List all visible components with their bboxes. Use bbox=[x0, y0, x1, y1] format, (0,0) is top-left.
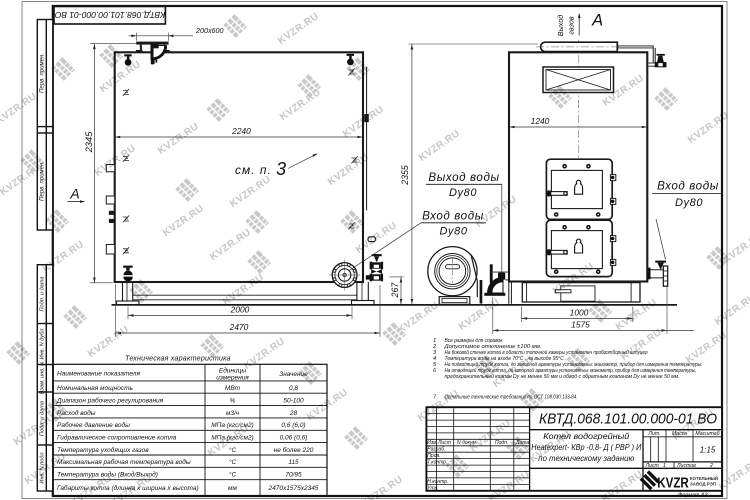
svg-text:KVZR: KVZR bbox=[657, 474, 689, 491]
svg-text:ЗАВОД РЭП: ЗАВОД РЭП bbox=[690, 482, 716, 487]
svg-text:измерения: измерения bbox=[216, 375, 249, 382]
svg-text:Перв. примен.: Перв. примен. bbox=[40, 53, 46, 93]
svg-text:Н.контр.: Н.контр. bbox=[427, 479, 448, 485]
svg-text:267: 267 bbox=[390, 282, 400, 299]
svg-text:2470: 2470 bbox=[229, 322, 249, 332]
svg-text:Рабочее давление воды: Рабочее давление воды bbox=[57, 421, 130, 429]
svg-text:°С: °С bbox=[229, 458, 237, 466]
svg-text:Лист: Лист bbox=[645, 463, 660, 469]
svg-text:50-100: 50-100 bbox=[283, 397, 304, 404]
svg-text:0,06 (0,6): 0,06 (0,6) bbox=[280, 435, 308, 442]
svg-text:200х600: 200х600 bbox=[195, 26, 224, 35]
svg-text:1000: 1000 bbox=[570, 307, 589, 317]
svg-text:Температура воды на входе 70°: Температура воды на входе 70°С , на выхо… bbox=[445, 356, 567, 362]
svg-text:Формат А3: Формат А3 bbox=[678, 493, 708, 499]
svg-text:%: % bbox=[230, 397, 236, 404]
svg-text:Диапазон рабочего регулировани: Диапазон рабочего регулирования bbox=[56, 396, 164, 404]
svg-text:А: А bbox=[69, 186, 79, 202]
svg-text:Допустимое отклонение ±100 мм: Допустимое отклонение ±100 мм. bbox=[443, 344, 541, 350]
svg-text:Масштаб: Масштаб bbox=[695, 431, 720, 437]
svg-text:по техническому заданию: по техническому заданию bbox=[538, 454, 634, 463]
svg-text:Наименование показателя: Наименование показателя bbox=[57, 371, 140, 378]
svg-text:0,6 (6,0): 0,6 (6,0) bbox=[281, 422, 305, 429]
svg-text:1575: 1575 bbox=[571, 319, 590, 329]
svg-text:Пров.: Пров. bbox=[427, 453, 440, 459]
svg-text:Инв. N дубл: Инв. N дубл bbox=[40, 328, 46, 360]
svg-text:Температура уходящих газов: Температура уходящих газов bbox=[57, 446, 149, 454]
svg-text:2355: 2355 bbox=[400, 165, 410, 186]
svg-text:Dу80: Dу80 bbox=[439, 226, 467, 238]
svg-text:Выход: Выход bbox=[556, 15, 565, 37]
svg-text:Выход воды: Выход воды bbox=[428, 171, 499, 184]
svg-text:Изм: Изм bbox=[427, 440, 437, 446]
svg-text:Подп. и дата: Подп. и дата bbox=[40, 276, 46, 311]
svg-text:2470х1575х2345: 2470х1575х2345 bbox=[268, 485, 319, 492]
svg-text:70/95: 70/95 bbox=[285, 472, 302, 479]
svg-text:Взам. инв. N: Взам. инв. N bbox=[40, 361, 46, 395]
svg-text:Т.контр.: Т.контр. bbox=[427, 460, 447, 466]
svg-text:Dу80: Dу80 bbox=[449, 187, 477, 199]
svg-text:На боковой стенке котла в обла: На боковой стенке котла в области топочн… bbox=[445, 349, 648, 356]
svg-text:КОТЕЛЬНЫЙ: КОТЕЛЬНЫЙ bbox=[690, 476, 718, 481]
svg-text:1:15: 1:15 bbox=[700, 446, 716, 455]
svg-text:А: А bbox=[591, 11, 603, 29]
svg-text:Лит.: Лит. bbox=[647, 431, 660, 437]
svg-text:28: 28 bbox=[289, 410, 298, 417]
svg-text:Гидравлическое сопротивление к: Гидравлическое сопротивление котла bbox=[57, 434, 177, 442]
svg-text:1: 1 bbox=[663, 463, 666, 469]
svg-text:Единицы: Единицы bbox=[219, 367, 246, 375]
svg-text:Максимальная рабочая температу: Максимальная рабочая температура воды bbox=[57, 458, 191, 466]
svg-text:мм: мм bbox=[228, 485, 237, 492]
svg-text:°С: °С bbox=[229, 471, 237, 479]
svg-text:КВТД.068.101.00.000-01 ВО: КВТД.068.101.00.000-01 ВО bbox=[54, 10, 165, 20]
svg-text:газов: газов bbox=[567, 16, 576, 35]
svg-text:Остальные технические требован: Остальные технические требования по ОСТ … bbox=[445, 395, 578, 401]
svg-text:115: 115 bbox=[288, 459, 299, 466]
svg-text:Перв. примен.: Перв. примен. bbox=[40, 161, 46, 201]
svg-text:2000: 2000 bbox=[230, 304, 250, 314]
svg-text:м3/ч: м3/ч bbox=[226, 410, 240, 417]
svg-text:0,8: 0,8 bbox=[289, 385, 298, 392]
svg-text:МВт: МВт bbox=[225, 385, 241, 392]
svg-text:Лист: Лист bbox=[437, 440, 451, 446]
svg-text:2345: 2345 bbox=[84, 131, 94, 153]
svg-text:Утв.: Утв. bbox=[427, 485, 438, 491]
svg-text:не более 220: не более 220 bbox=[274, 446, 314, 454]
svg-text:Разраб.: Разраб. bbox=[427, 447, 445, 453]
svg-text:1240: 1240 bbox=[531, 116, 550, 126]
svg-text:4: 4 bbox=[433, 356, 436, 362]
svg-text:Вход воды: Вход воды bbox=[657, 180, 719, 193]
svg-text:Номинальная мощность: Номинальная мощность bbox=[57, 385, 134, 392]
svg-text:Dу80: Dу80 bbox=[675, 197, 703, 209]
svg-text:Листов: Листов bbox=[676, 463, 696, 469]
svg-text:предохранительный клапан Dу н: предохранительный клапан Dу не менее 50 … bbox=[445, 373, 680, 380]
svg-text:2: 2 bbox=[709, 463, 713, 469]
svg-text:2240: 2240 bbox=[231, 126, 251, 136]
svg-text:°С: °С bbox=[229, 446, 237, 454]
svg-text:Подп.: Подп. bbox=[495, 440, 508, 446]
